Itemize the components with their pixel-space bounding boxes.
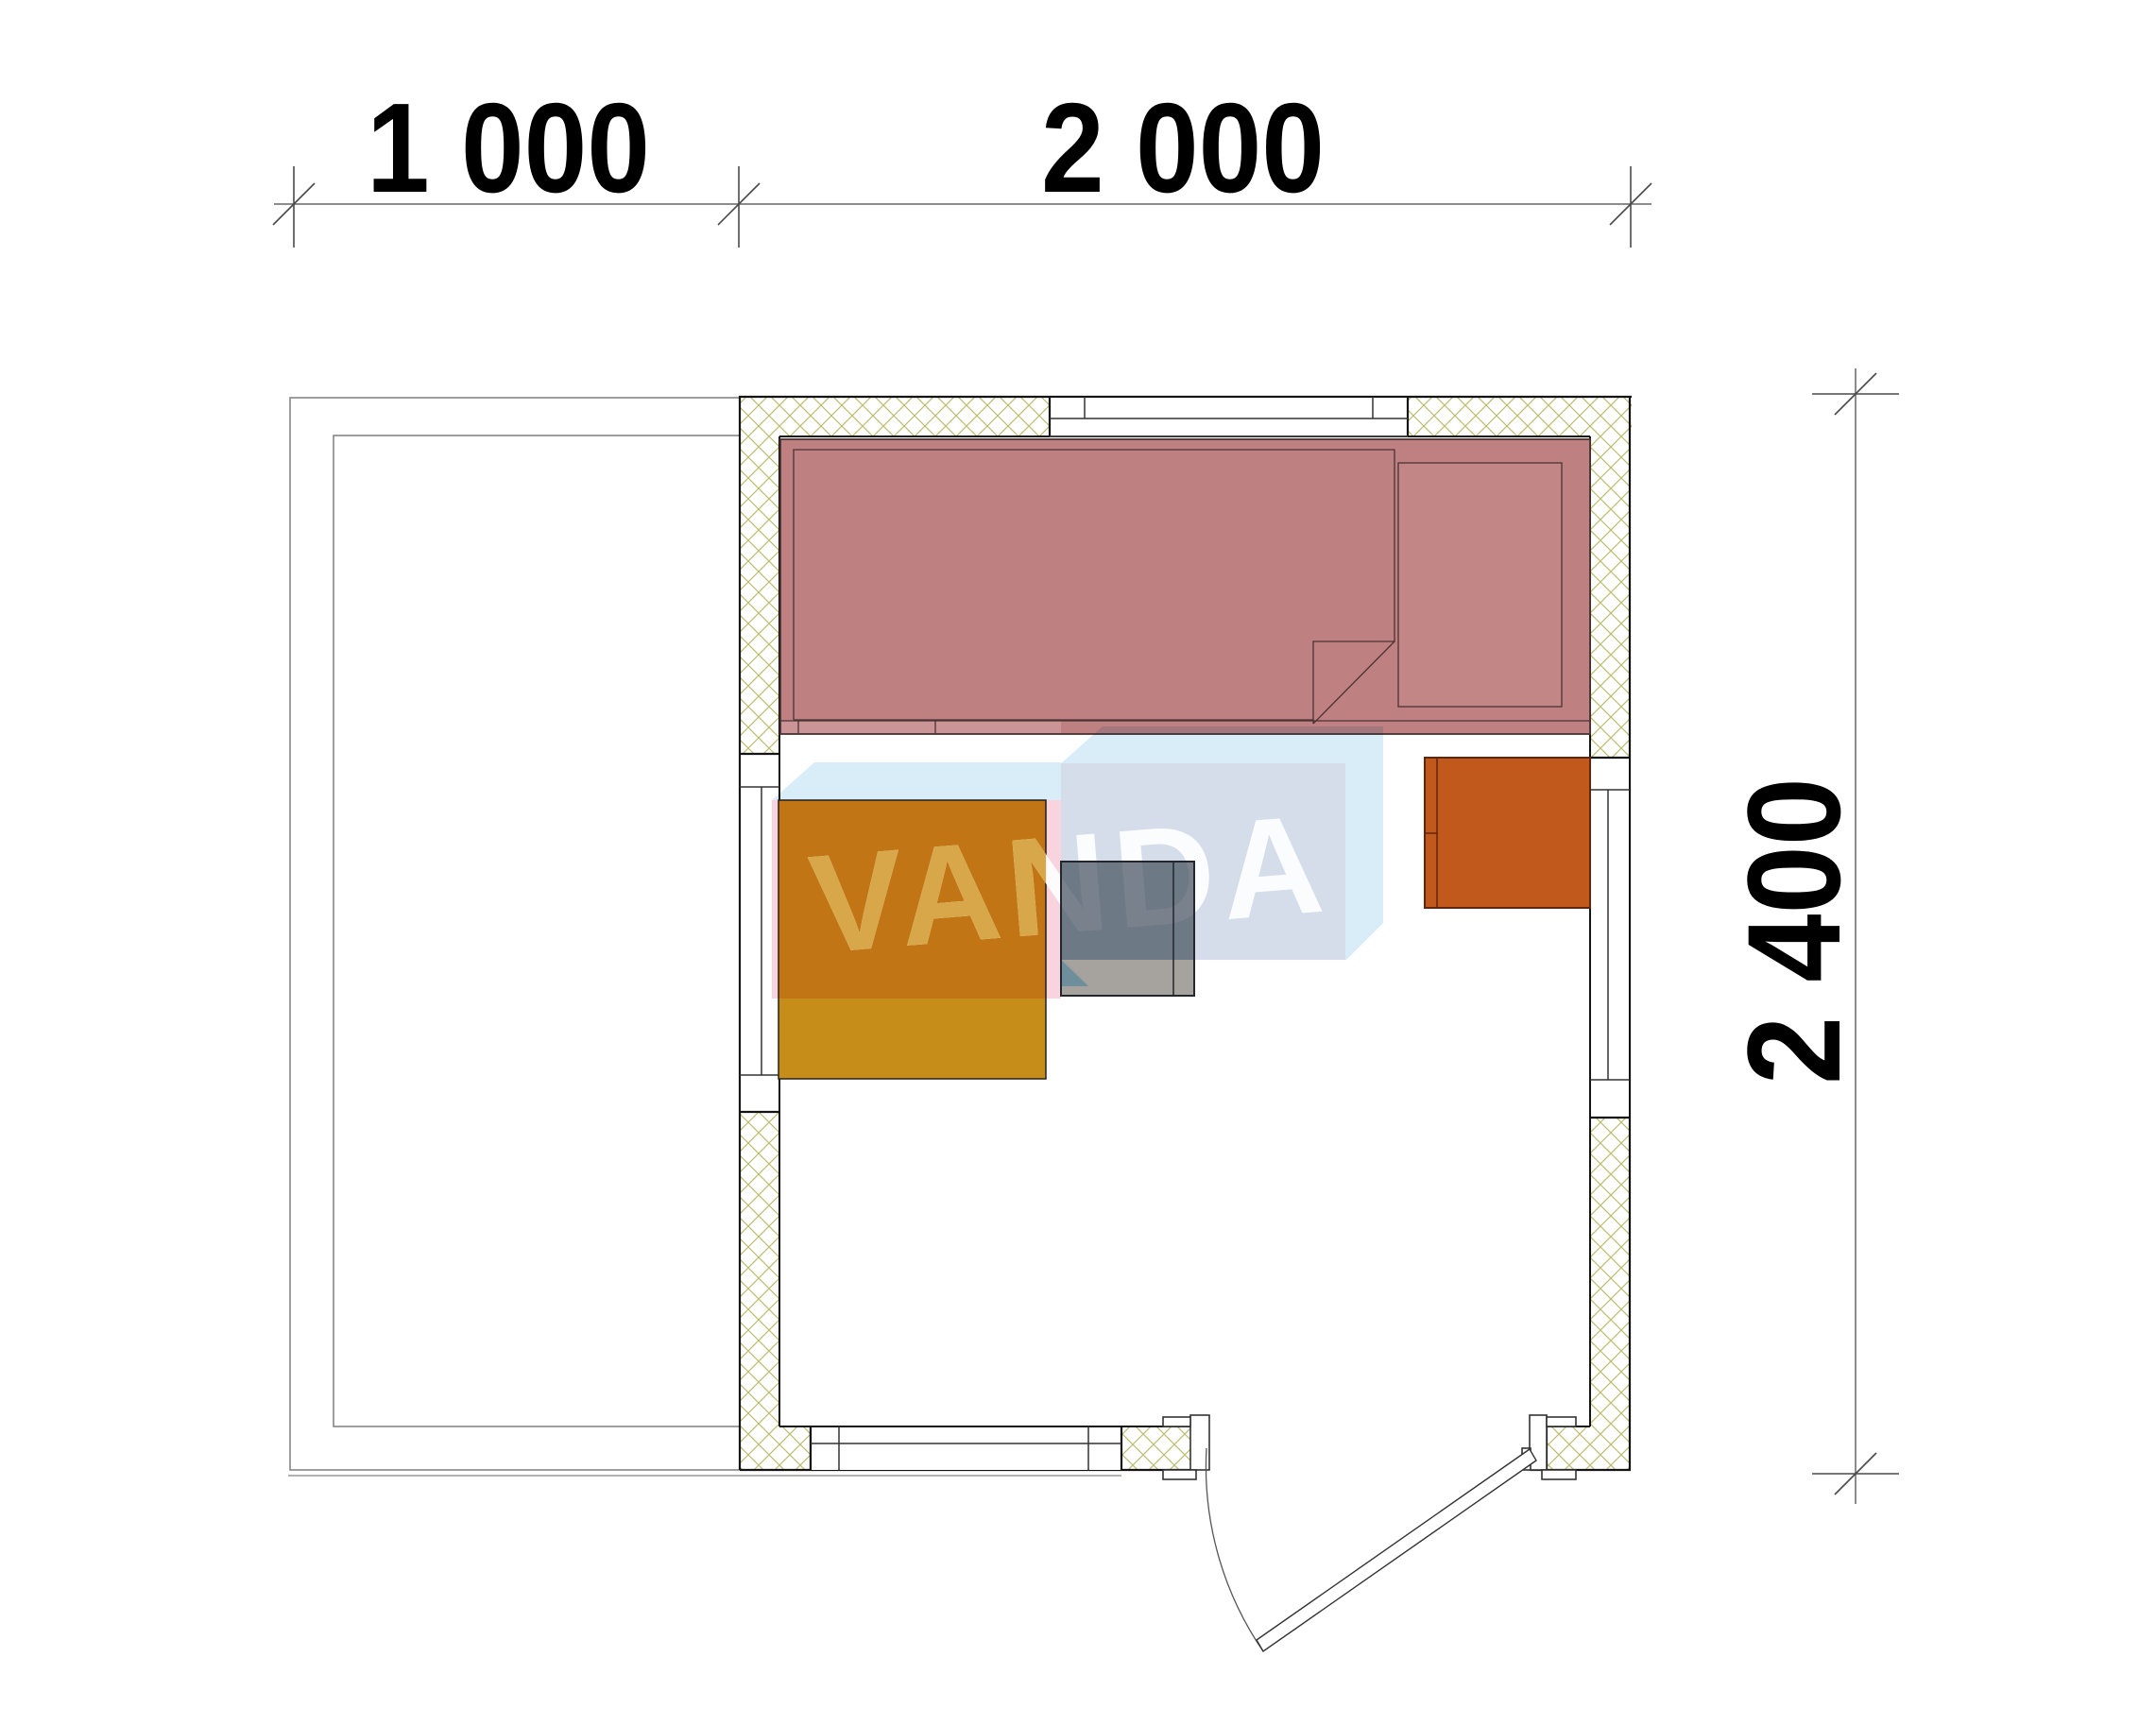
svg-text:2 000: 2 000 xyxy=(1041,77,1325,219)
svg-text:1 000: 1 000 xyxy=(367,77,650,219)
svg-text:2 400: 2 400 xyxy=(1720,777,1868,1085)
